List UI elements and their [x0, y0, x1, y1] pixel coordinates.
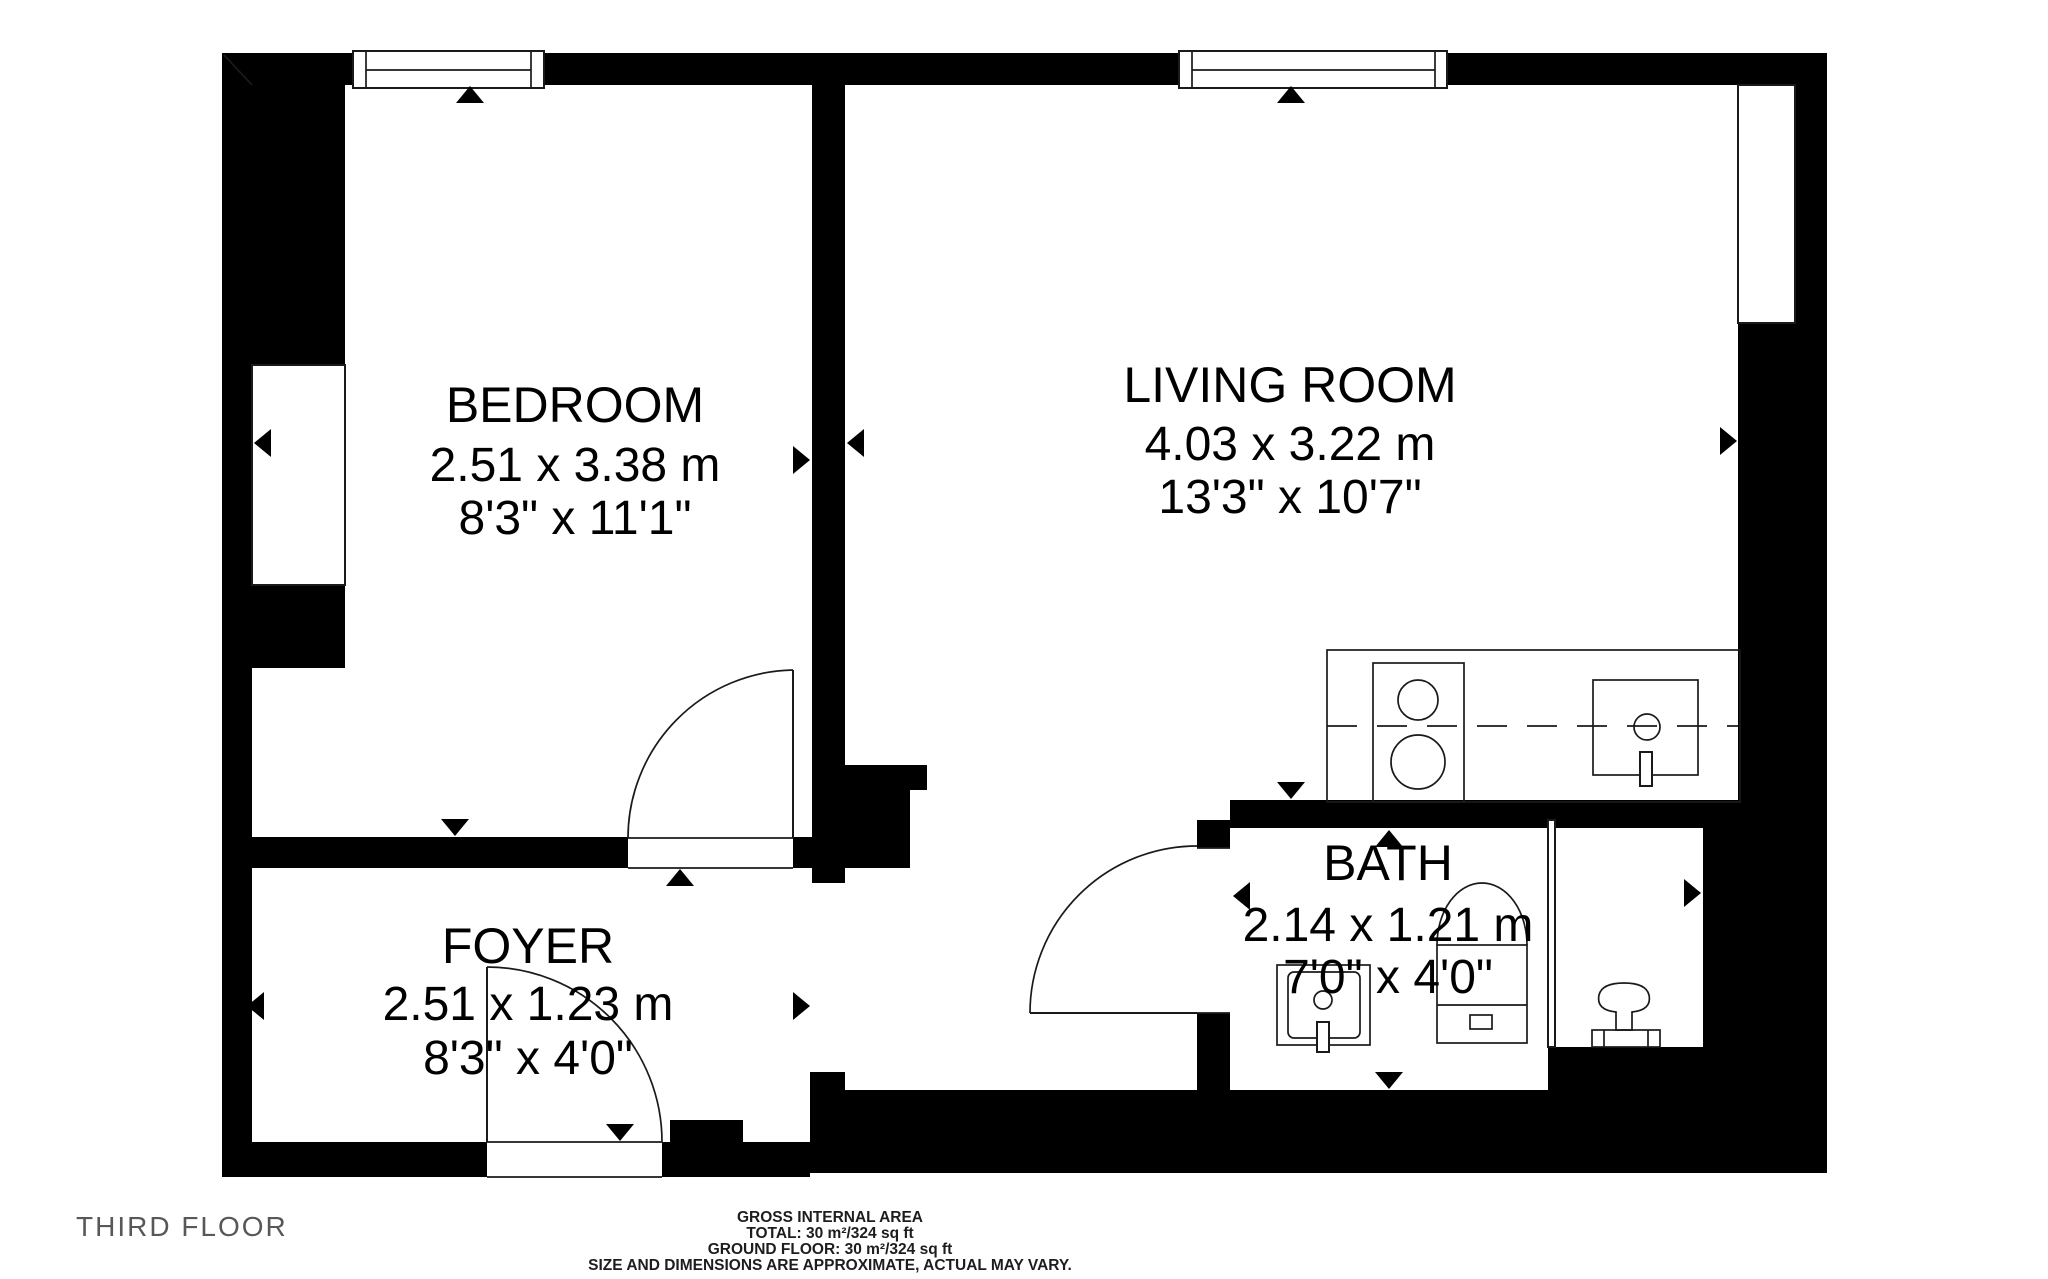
bedroom-dims-imperial: 8'3" x 11'1"	[459, 492, 692, 545]
corridor-step	[810, 1072, 845, 1090]
foyer-bottom-wall-left	[222, 1142, 487, 1177]
bedroom-bottom-wall	[252, 837, 628, 868]
bedroom-arrow-right-icon	[793, 446, 810, 474]
bottom-right-block	[1548, 1047, 1827, 1173]
top-wall-mid	[544, 53, 1179, 85]
gross-internal-area-note: GROSS INTERNAL AREA TOTAL: 30 m²/324 sq …	[588, 1209, 1072, 1274]
left-block-lower	[252, 585, 345, 668]
foyer-label: FOYER	[442, 918, 614, 974]
bedroom-window	[353, 51, 544, 88]
bathdoor-stub-bottom	[1197, 1013, 1230, 1090]
foyer-bottom-wall-right	[662, 1142, 810, 1177]
bath-partition-wall	[1548, 820, 1555, 1047]
door-swing-arc	[628, 670, 793, 838]
kitchen-sink-icon	[1593, 680, 1698, 786]
radiator-icon	[1592, 983, 1660, 1047]
living-dims-metric: 4.03 x 3.22 m	[1145, 418, 1436, 471]
bath-label: BATH	[1323, 835, 1453, 891]
kitchen-bath-wall	[1230, 800, 1740, 828]
bedroom-dims-metric: 2.51 x 3.38 m	[430, 439, 721, 492]
bedroom-arrow-down-icon	[441, 819, 469, 836]
living-wall-notch	[1738, 85, 1795, 323]
footer-line-3: GROUND FLOOR: 30 m²/324 sq ft	[708, 1241, 953, 1258]
living-arrow-right-icon	[1720, 427, 1737, 455]
footer-line-1: GROSS INTERNAL AREA	[737, 1209, 923, 1226]
burner	[1391, 735, 1445, 789]
sink-tap	[1640, 752, 1652, 786]
foyer-arrow-right-icon	[793, 992, 810, 1020]
right-wall-mid	[1738, 323, 1827, 800]
bedroom-door	[628, 670, 793, 868]
divider-tab	[910, 765, 927, 790]
toilet-pipe	[1317, 1022, 1329, 1052]
floor-plan-page: BEDROOM 2.51 x 3.38 m 8'3" x 11'1" LIVIN…	[0, 0, 2048, 1279]
basin-detail	[1470, 1015, 1492, 1029]
bathdoor-stub-top	[1197, 820, 1230, 848]
left-block-upper	[252, 85, 345, 365]
living-arrow-left-icon	[847, 429, 864, 457]
foyer-dims-metric: 2.51 x 1.23 m	[383, 978, 674, 1031]
door-swing-arc	[1030, 846, 1197, 1013]
divider-block	[845, 765, 910, 868]
bedroom-alcove	[252, 365, 345, 585]
foyer-arrow-down-icon	[606, 1124, 634, 1141]
stove-icon	[1373, 663, 1464, 802]
floor-label: THIRD FLOOR	[76, 1211, 288, 1242]
entry-step	[670, 1120, 743, 1142]
bedroom-bottom-wall-right	[793, 837, 812, 868]
bath-dims-metric: 2.14 x 1.21 m	[1243, 899, 1534, 952]
living-room-label: LIVING ROOM	[1123, 357, 1456, 413]
left-wall	[222, 53, 252, 1177]
foyer-arrow-up-icon	[666, 869, 694, 886]
kitchen-counter	[1327, 650, 1740, 802]
sink-drain	[1634, 714, 1660, 740]
bedroom-label: BEDROOM	[446, 377, 704, 433]
footer-line-4: SIZE AND DIMENSIONS ARE APPROXIMATE, ACT…	[588, 1257, 1072, 1274]
bath-arrow-right-icon	[1684, 879, 1701, 907]
right-wall-top	[1795, 53, 1827, 323]
divider-wall	[812, 85, 845, 883]
stove-outline	[1373, 663, 1464, 802]
room-labels: BEDROOM 2.51 x 3.38 m 8'3" x 11'1" LIVIN…	[383, 357, 1534, 1085]
radiator-base	[1592, 1030, 1660, 1047]
right-wall-lower	[1703, 800, 1827, 1047]
living-arrow-down-icon	[1277, 782, 1305, 799]
bath-dims-imperial: 7'0" x 4'0"	[1283, 951, 1493, 1004]
burner	[1398, 680, 1438, 720]
bath-arrow-down-icon	[1375, 1072, 1403, 1089]
foyer-dims-imperial: 8'3" x 4'0"	[423, 1032, 633, 1085]
living-dims-imperial: 13'3" x 10'7"	[1158, 471, 1421, 524]
top-wall-right	[1447, 53, 1827, 85]
radiator-valve	[1599, 983, 1650, 1030]
bottom-band	[810, 1090, 1548, 1173]
footer-line-2: TOTAL: 30 m²/324 sq ft	[746, 1225, 913, 1242]
living-window	[1179, 51, 1447, 88]
floor-plan-drawing: BEDROOM 2.51 x 3.38 m 8'3" x 11'1" LIVIN…	[0, 0, 2048, 1279]
bath-door	[1030, 846, 1230, 1013]
